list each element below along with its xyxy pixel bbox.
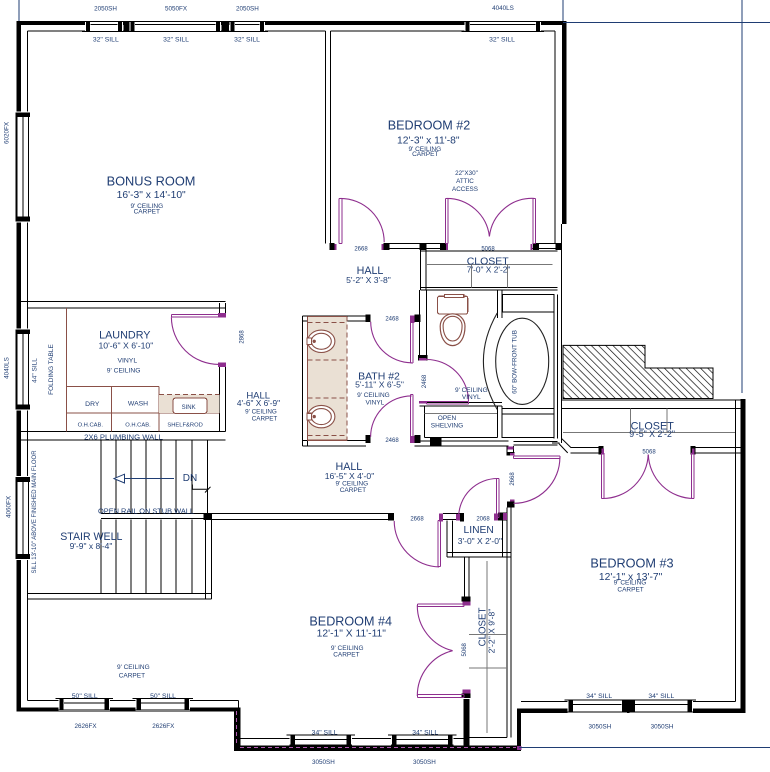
svg-text:DRY: DRY [85, 401, 100, 408]
svg-text:5068: 5068 [481, 246, 495, 252]
svg-text:34" SILL: 34" SILL [586, 693, 612, 700]
svg-text:O.H.CAB.: O.H.CAB. [78, 422, 104, 428]
svg-text:CARPET: CARPET [333, 652, 359, 659]
svg-text:5'-11" X 6'-5": 5'-11" X 6'-5" [355, 379, 404, 389]
svg-text:VINYL: VINYL [462, 394, 481, 401]
svg-text:OPEN: OPEN [438, 415, 457, 422]
svg-text:3050SH: 3050SH [312, 759, 335, 766]
svg-text:32" SILL: 32" SILL [163, 36, 189, 43]
svg-text:4'-6" X 6'-9": 4'-6" X 6'-9" [237, 398, 280, 408]
svg-text:50" SILL: 50" SILL [150, 693, 176, 700]
svg-text:44" SILL: 44" SILL [32, 358, 39, 383]
svg-text:2068: 2068 [476, 517, 490, 523]
svg-text:32" SILL: 32" SILL [489, 36, 515, 43]
svg-text:32" SILL: 32" SILL [234, 36, 260, 43]
svg-text:2X6 PLUMBING WALL: 2X6 PLUMBING WALL [84, 433, 163, 442]
svg-text:34" SILL: 34" SILL [648, 693, 674, 700]
svg-text:OPEN RAIL ON STUB WALL: OPEN RAIL ON STUB WALL [98, 507, 194, 516]
svg-text:2050SH: 2050SH [236, 6, 259, 13]
svg-text:2668: 2668 [510, 472, 516, 486]
svg-text:2668: 2668 [410, 517, 424, 523]
svg-text:SHELVING: SHELVING [431, 423, 463, 430]
svg-text:CARPET: CARPET [252, 416, 278, 423]
svg-text:CARPET: CARPET [119, 673, 145, 680]
svg-text:4040LS: 4040LS [4, 357, 11, 379]
svg-text:3'-0" X 2'-0": 3'-0" X 2'-0" [458, 536, 502, 546]
svg-text:O.H.CAB.: O.H.CAB. [125, 422, 151, 428]
svg-text:2050SH: 2050SH [94, 6, 117, 13]
svg-text:CARPET: CARPET [412, 151, 438, 158]
svg-text:9'-9" x 8'-4": 9'-9" x 8'-4" [70, 541, 113, 551]
svg-text:34" SILL: 34" SILL [412, 729, 438, 736]
svg-text:LINEN: LINEN [464, 525, 494, 536]
svg-text:9' CEILING: 9' CEILING [245, 409, 277, 416]
svg-text:22"X30": 22"X30" [455, 170, 478, 177]
svg-text:50" SILL: 50" SILL [72, 693, 98, 700]
svg-text:9'-5" X 2'-2": 9'-5" X 2'-2" [629, 429, 675, 439]
svg-text:10'-6" X 6'-10": 10'-6" X 6'-10" [98, 341, 153, 351]
svg-text:SINK: SINK [182, 405, 196, 411]
svg-text:2626FX: 2626FX [74, 723, 97, 730]
svg-text:CARPET: CARPET [617, 587, 643, 594]
svg-text:34" SILL: 34" SILL [312, 729, 338, 736]
svg-text:2'-2" X 9'-8": 2'-2" X 9'-8" [487, 609, 497, 654]
svg-text:12'-1" X 11'-11": 12'-1" X 11'-11" [317, 629, 387, 640]
svg-text:5068: 5068 [642, 450, 656, 456]
svg-text:FOLDING TABLE: FOLDING TABLE [48, 343, 55, 394]
svg-text:ACCESS: ACCESS [452, 186, 478, 193]
svg-text:BEDROOM #4: BEDROOM #4 [309, 615, 392, 629]
svg-text:9' CEILING: 9' CEILING [107, 368, 141, 375]
svg-text:DN: DN [183, 473, 197, 484]
svg-text:VINYL: VINYL [117, 357, 137, 364]
svg-text:ATTIC: ATTIC [456, 178, 474, 185]
svg-text:CARPET: CARPET [340, 487, 366, 494]
svg-text:VINYL: VINYL [366, 400, 385, 407]
svg-text:32" SILL: 32" SILL [93, 36, 119, 43]
svg-text:5050FX: 5050FX [165, 6, 188, 13]
svg-text:6020FX: 6020FX [4, 121, 11, 144]
svg-text:5'-2" X 3'-8": 5'-2" X 3'-8" [346, 275, 391, 285]
svg-text:4060FX: 4060FX [6, 495, 13, 518]
svg-text:CARPET: CARPET [134, 209, 160, 216]
svg-text:WASH: WASH [128, 401, 148, 408]
svg-text:9' CEILING: 9' CEILING [455, 387, 488, 394]
svg-text:7'-0" X 2'-2": 7'-0" X 2'-2" [467, 264, 511, 274]
svg-text:3050SH: 3050SH [413, 759, 436, 766]
svg-text:4040LS: 4040LS [492, 5, 514, 12]
svg-text:SHELF&ROD: SHELF&ROD [167, 422, 202, 428]
svg-text:60" BOW-FRONT TUB: 60" BOW-FRONT TUB [512, 330, 519, 394]
svg-text:BONUS ROOM: BONUS ROOM [107, 174, 196, 189]
svg-text:9' CEILING: 9' CEILING [117, 664, 150, 671]
svg-text:9' CEILING: 9' CEILING [614, 580, 647, 587]
svg-text:2626FX: 2626FX [152, 723, 175, 730]
svg-text:BEDROOM #3: BEDROOM #3 [590, 557, 673, 571]
svg-text:3050SH: 3050SH [651, 724, 674, 731]
svg-text:BEDROOM #2: BEDROOM #2 [388, 119, 471, 133]
svg-text:9' CEILING: 9' CEILING [357, 392, 390, 399]
svg-text:2468: 2468 [385, 438, 399, 444]
svg-text:16'-3" x 14'-10": 16'-3" x 14'-10" [117, 190, 186, 201]
svg-text:2868: 2868 [240, 330, 246, 344]
svg-text:3050SH: 3050SH [589, 724, 612, 731]
svg-text:SILL 13'-10" ABOVE FINISHED MA: SILL 13'-10" ABOVE FINISHED MAIN FLOOR [32, 450, 38, 574]
svg-text:2468: 2468 [422, 374, 428, 388]
svg-text:2468: 2468 [385, 316, 399, 322]
svg-text:2668: 2668 [354, 246, 368, 252]
svg-text:5068: 5068 [462, 642, 468, 656]
